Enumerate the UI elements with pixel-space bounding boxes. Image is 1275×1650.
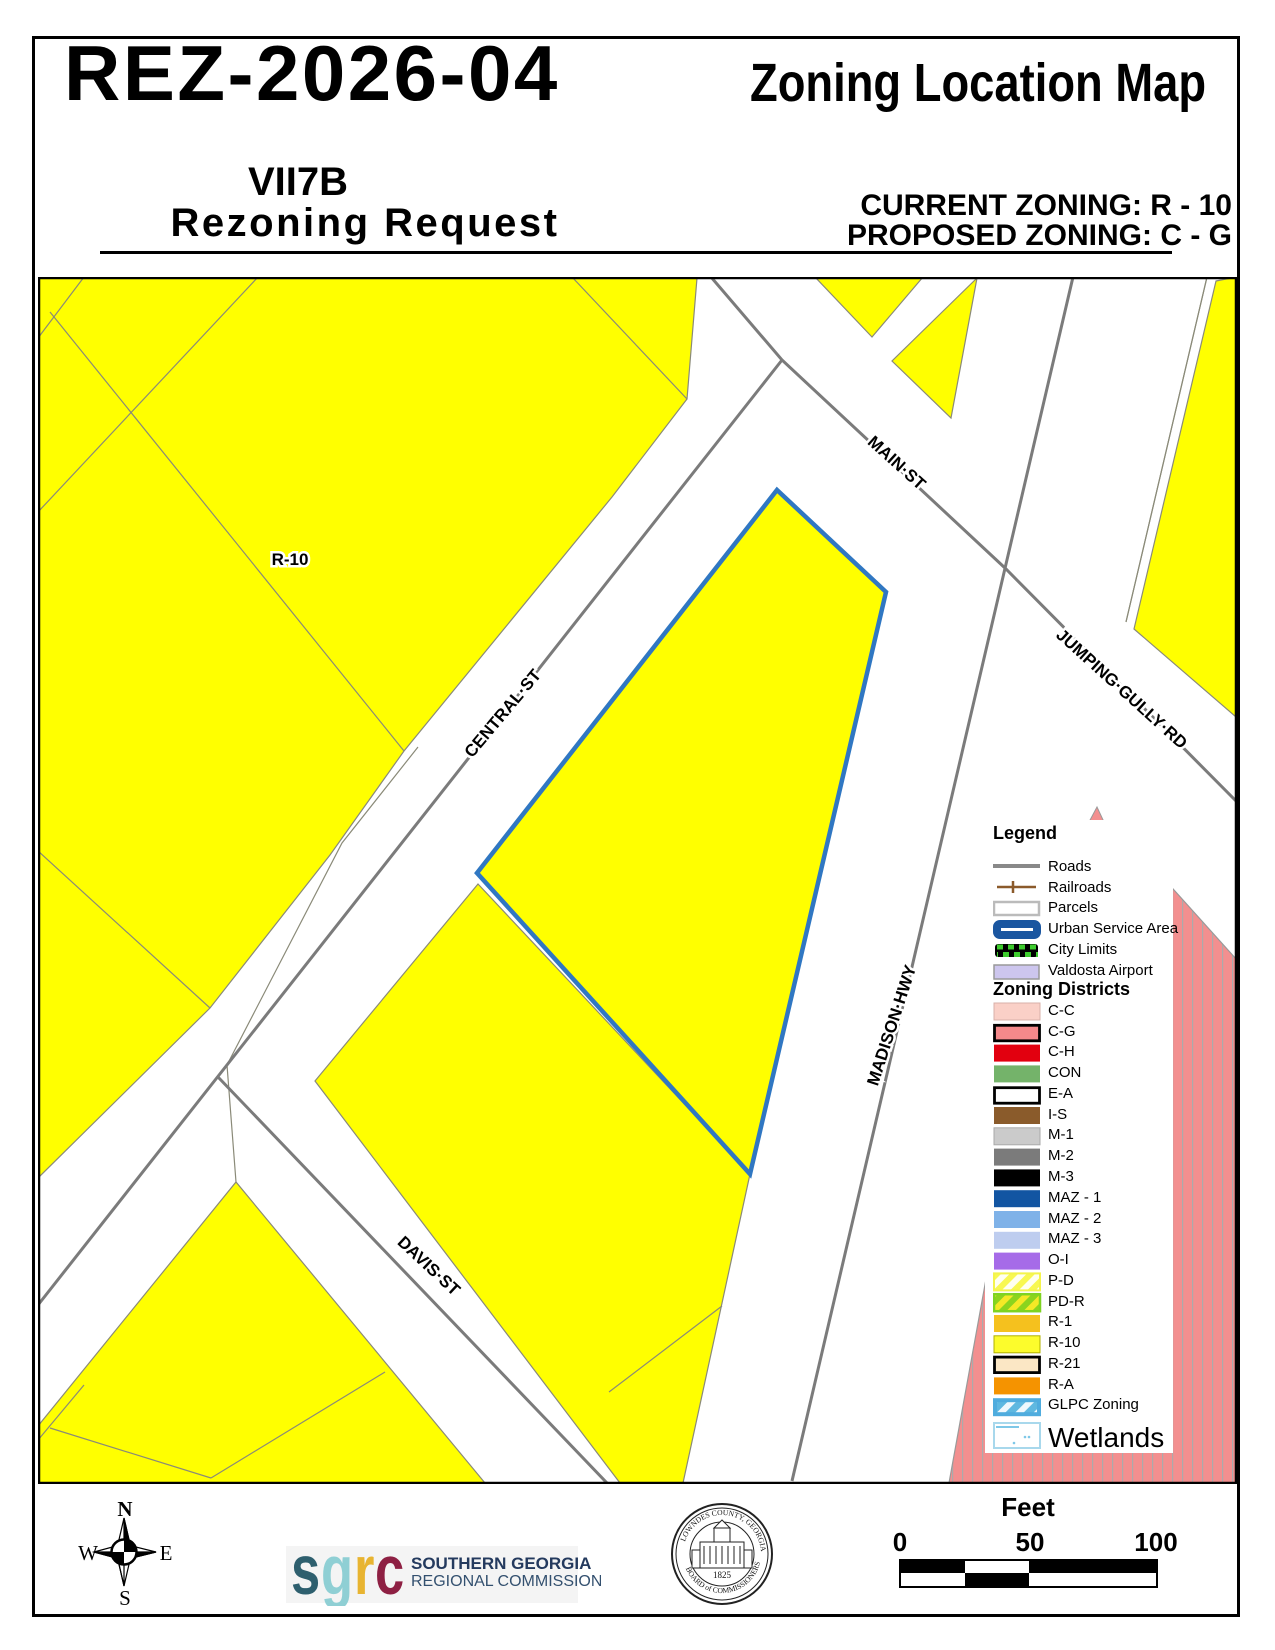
svg-text:N: N xyxy=(117,1497,132,1521)
svg-text:REGIONAL COMMISSION: REGIONAL COMMISSION xyxy=(411,1573,601,1590)
svg-text:R-10: R-10 xyxy=(272,550,309,569)
svg-text:r: r xyxy=(354,1548,374,1606)
svg-text:s: s xyxy=(291,1548,320,1606)
svg-text:1825: 1825 xyxy=(713,1570,732,1580)
svg-text:g: g xyxy=(321,1548,353,1606)
svg-text:c: c xyxy=(375,1548,404,1606)
svg-text:E: E xyxy=(160,1541,173,1565)
svg-text:W: W xyxy=(78,1541,98,1565)
svg-text:S: S xyxy=(119,1586,131,1610)
svg-text:SOUTHERN GEORGIA: SOUTHERN GEORGIA xyxy=(411,1554,591,1573)
